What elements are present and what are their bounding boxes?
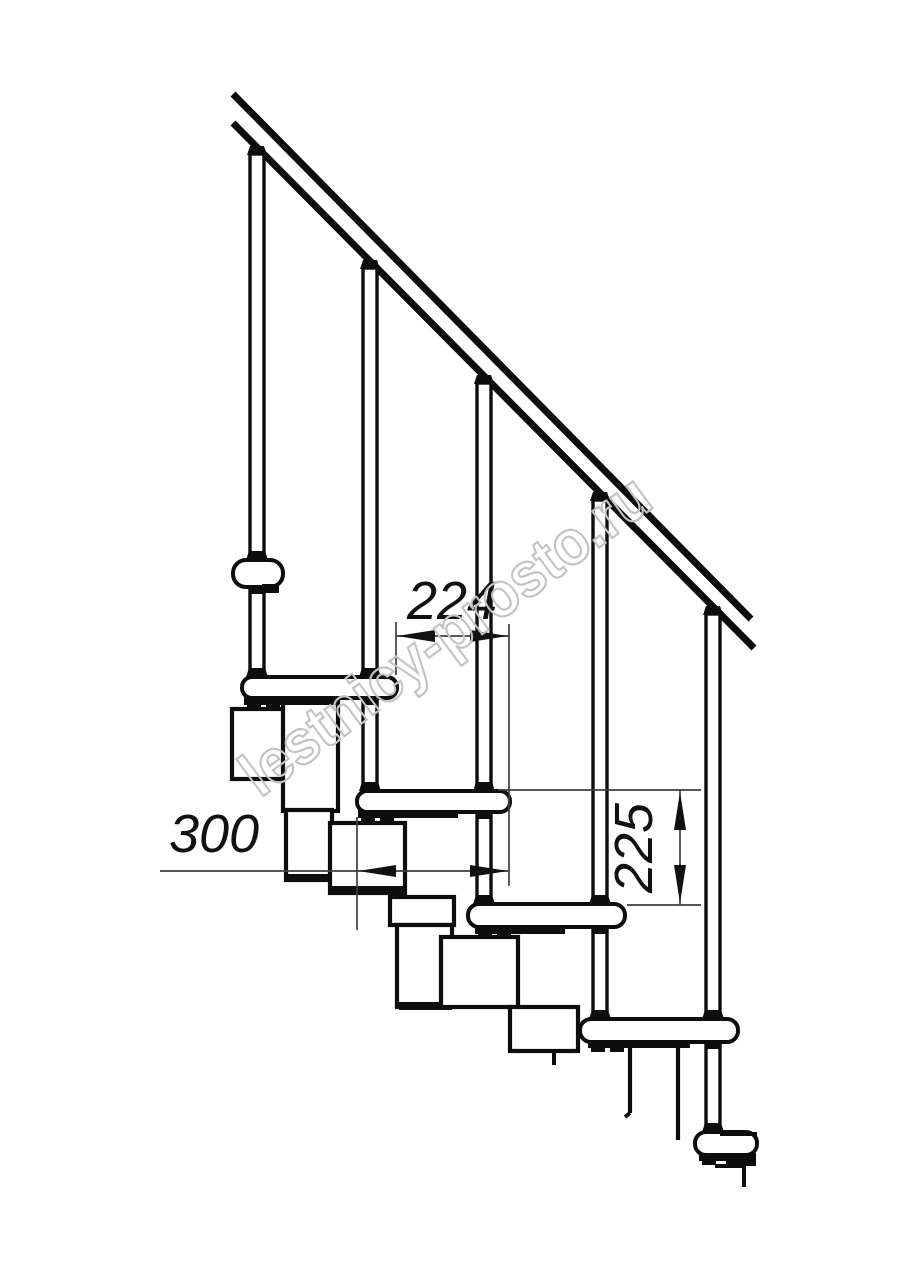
tread-4 [468, 904, 625, 927]
bracket-foot [497, 933, 511, 938]
bracket-foot [361, 817, 375, 822]
stair-drawing-canvas: 224 300 225 lestnicy-prosto.ru [0, 0, 914, 1280]
module-3-extension [510, 1007, 578, 1051]
connector-t5-b5 [702, 1010, 724, 1019]
module-3 [441, 937, 518, 1007]
module-4-foot [625, 1113, 630, 1117]
bottom-step-hook [715, 1166, 744, 1187]
connector-t3-b3 [473, 782, 495, 791]
connector-t2-b1 [246, 668, 268, 677]
collar-b5 [705, 1042, 721, 1049]
bracket-step [726, 1159, 756, 1166]
module-1b [286, 810, 332, 880]
bracket-foot [380, 817, 394, 822]
connector-t1-b1 [246, 551, 268, 560]
bracket-foot [702, 1160, 716, 1165]
baluster-5 [706, 614, 720, 1133]
bracket-foot [247, 704, 261, 709]
connector-t5-b4 [589, 1010, 611, 1019]
bracket-foot [610, 1047, 624, 1052]
dim-225-arrow-up [674, 792, 686, 830]
collar-b1 [249, 587, 265, 594]
bracket-foot [266, 704, 280, 709]
tread-3 [357, 791, 510, 812]
bracket-foot [478, 933, 492, 938]
tread-5 [580, 1019, 738, 1042]
stair-drawing-page: 224 300 225 lestnicy-prosto.ru [0, 0, 914, 1280]
bracket-tread-4 [475, 925, 565, 934]
module-2-base [330, 886, 405, 894]
collar-b3 [476, 812, 492, 819]
baluster-4 [593, 500, 607, 1020]
bracket-tread-5 [588, 1040, 690, 1048]
baluster-1 [250, 154, 264, 677]
connector-t4-b3 [473, 895, 495, 904]
module-2b-upper [390, 897, 454, 925]
module-1b-base [286, 874, 332, 882]
connector-t4-b4 [589, 895, 611, 904]
bracket-foot [591, 1047, 605, 1052]
rail-cap-3 [474, 375, 494, 384]
dim-225-label: 225 [604, 802, 664, 894]
rail-cap-5 [703, 606, 723, 615]
tread-1-stub [233, 560, 283, 587]
rail-cap-2 [360, 260, 380, 269]
rail-cap-1 [247, 146, 267, 155]
collar-b4 [592, 927, 608, 934]
connector-t3-b2 [359, 782, 381, 791]
dim-300-label: 300 [169, 804, 259, 864]
connector-t6-b5 [702, 1123, 724, 1132]
dim-225-arrow-down [674, 865, 686, 903]
bracket-tread-3 [358, 810, 458, 818]
module-2 [330, 823, 405, 893]
